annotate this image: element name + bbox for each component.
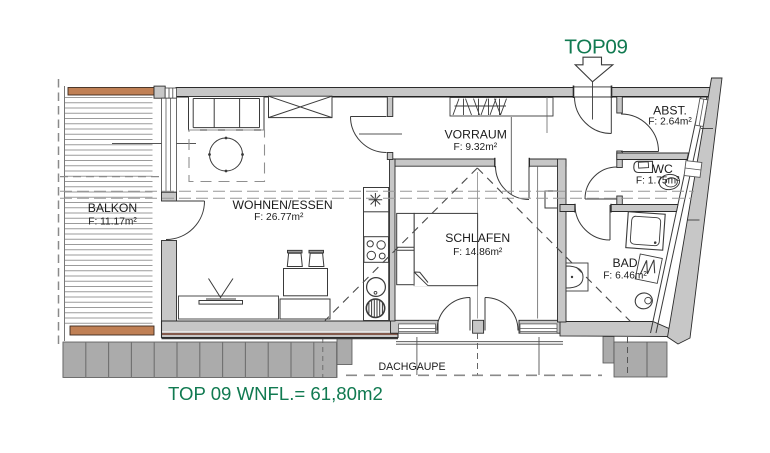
- svg-text:SCHLAFEN: SCHLAFEN: [445, 231, 510, 245]
- svg-text:F: 6.46m²: F: 6.46m²: [603, 271, 647, 282]
- svg-text:WC: WC: [653, 162, 674, 176]
- svg-text:F: 2.64m²: F: 2.64m²: [648, 116, 692, 127]
- svg-text:TOP09: TOP09: [564, 36, 627, 59]
- svg-text:BALKON: BALKON: [88, 201, 137, 215]
- svg-text:WOHNEN/ESSEN: WOHNEN/ESSEN: [232, 198, 332, 212]
- svg-text:VORRAUM: VORRAUM: [445, 128, 507, 142]
- svg-text:F: 26.77m²: F: 26.77m²: [254, 212, 304, 223]
- svg-text:F: 14.86m²: F: 14.86m²: [453, 247, 503, 258]
- svg-text:TOP 09 WNFL.= 61,80m2: TOP 09 WNFL.= 61,80m2: [168, 383, 383, 404]
- svg-text:DACHGAUPE: DACHGAUPE: [378, 361, 445, 373]
- svg-text:F: 1.75m²: F: 1.75m²: [636, 176, 680, 187]
- svg-text:F: 9.32m²: F: 9.32m²: [454, 142, 498, 153]
- svg-text:F: 11.17m²: F: 11.17m²: [88, 217, 137, 228]
- svg-text:BAD: BAD: [612, 256, 637, 270]
